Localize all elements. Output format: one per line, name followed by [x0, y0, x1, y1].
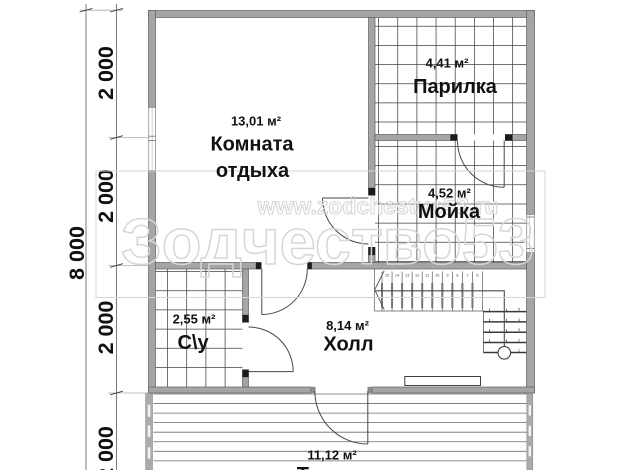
svg-text:Терраса: Терраса: [297, 464, 378, 470]
svg-text:11,12 м²: 11,12 м²: [307, 448, 357, 463]
svg-text:Холл: Холл: [323, 334, 373, 356]
svg-text:2 000: 2 000: [94, 301, 118, 355]
svg-text:8,14 м²: 8,14 м²: [326, 318, 370, 333]
svg-text:4,41 м²: 4,41 м²: [426, 56, 470, 71]
svg-text:13,01 м²: 13,01 м²: [231, 114, 282, 129]
svg-text:8 000: 8 000: [65, 226, 89, 280]
svg-text:отдыха: отдыха: [216, 160, 290, 182]
svg-text:4,52 м²: 4,52 м²: [428, 185, 472, 200]
svg-text:С\у: С\у: [177, 332, 209, 354]
svg-text:Комната: Комната: [210, 134, 294, 156]
svg-text:2 000: 2 000: [94, 46, 118, 100]
svg-text:2,55 м²: 2,55 м²: [173, 312, 217, 327]
svg-text:2 000: 2 000: [94, 169, 118, 223]
svg-text:2 000: 2 000: [94, 426, 118, 470]
svg-text:Мойка: Мойка: [418, 201, 481, 223]
svg-text:Парилка: Парилка: [413, 76, 498, 98]
